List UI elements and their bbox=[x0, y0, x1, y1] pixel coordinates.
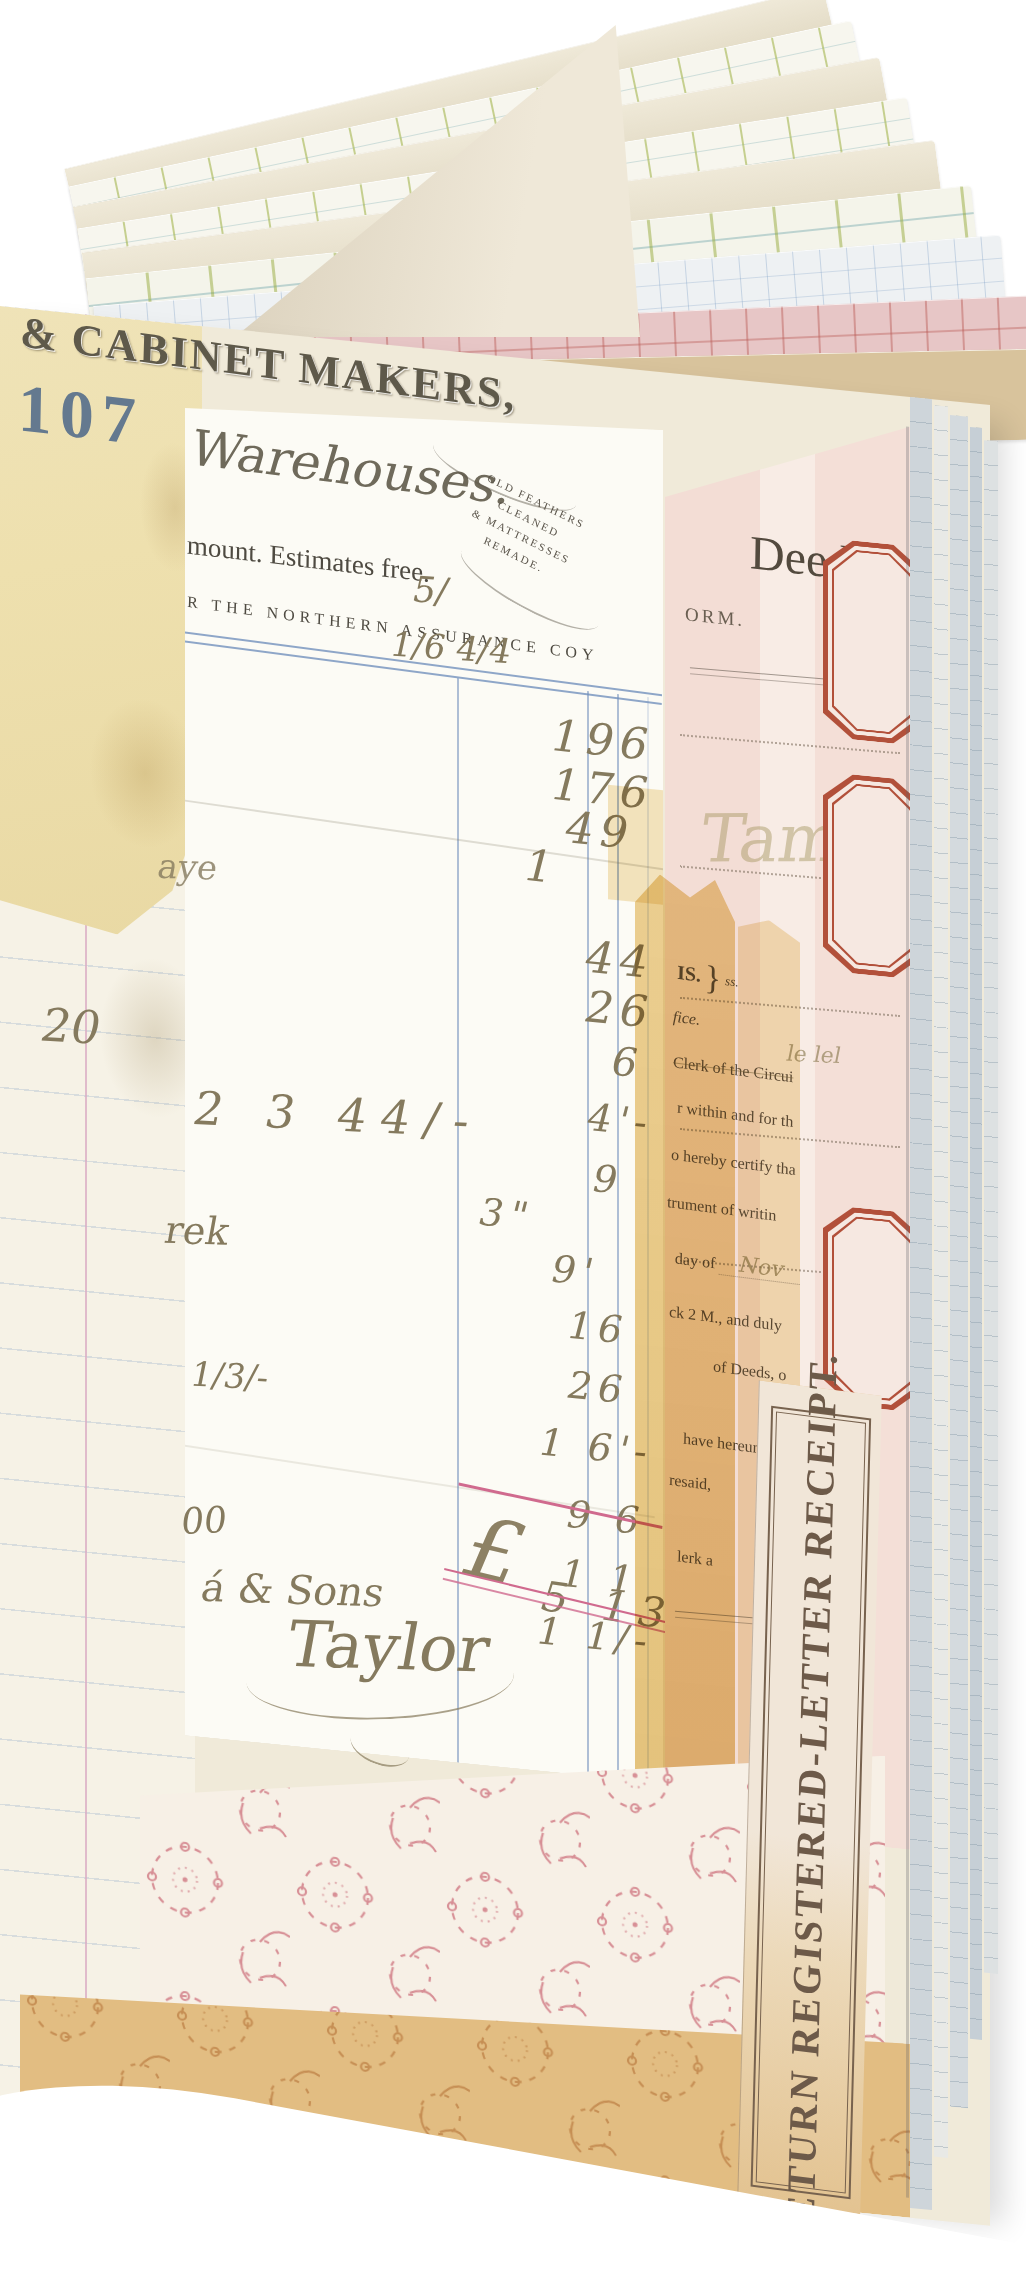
page-edge bbox=[984, 440, 998, 1974]
cover-edge-shadow bbox=[906, 426, 909, 2197]
low-scribble: rek bbox=[161, 1208, 228, 1254]
page-edges bbox=[910, 397, 990, 2226]
page-edge bbox=[910, 397, 932, 2210]
ledger-amount: 9' bbox=[548, 1246, 650, 1300]
rate-upper: 5/ bbox=[409, 568, 445, 611]
ledger-amount: 1 6'- bbox=[536, 1419, 650, 1474]
page-edge bbox=[970, 427, 982, 2040]
invoice-number: 107 bbox=[17, 368, 144, 461]
journal-cover: & CABINET MAKERS, 107 Warehouses. OLD FE… bbox=[0, 305, 990, 2226]
faded-script: Tam bbox=[691, 800, 839, 878]
paper-stain bbox=[90, 693, 200, 853]
rate-lower: 1/6 4/4 bbox=[387, 623, 509, 671]
fraction-note: 1/3/- bbox=[187, 1354, 267, 1398]
receipt-label-border: RETURN REGISTERED-LETTER RECEIPT. bbox=[751, 1406, 872, 2199]
tape-strip bbox=[635, 872, 735, 1882]
receipt-label-strip: RETURN REGISTERED-LETTER RECEIPT. bbox=[737, 1380, 882, 2214]
margin-value: 20 bbox=[37, 997, 97, 1055]
margin-scribble: aye bbox=[154, 846, 216, 888]
page-edge bbox=[950, 415, 968, 2108]
product-photo: & CABINET MAKERS, 107 Warehouses. OLD FE… bbox=[0, 0, 1026, 2290]
receipt-label-text: RETURN REGISTERED-LETTER RECEIPT. bbox=[775, 1348, 846, 2257]
page-edge bbox=[934, 405, 948, 2158]
zeros-note: 00 bbox=[175, 1499, 226, 1542]
deed-form-label: ORM. bbox=[685, 603, 745, 631]
receipt-label-inner-border: RETURN REGISTERED-LETTER RECEIPT. bbox=[756, 1411, 866, 2193]
